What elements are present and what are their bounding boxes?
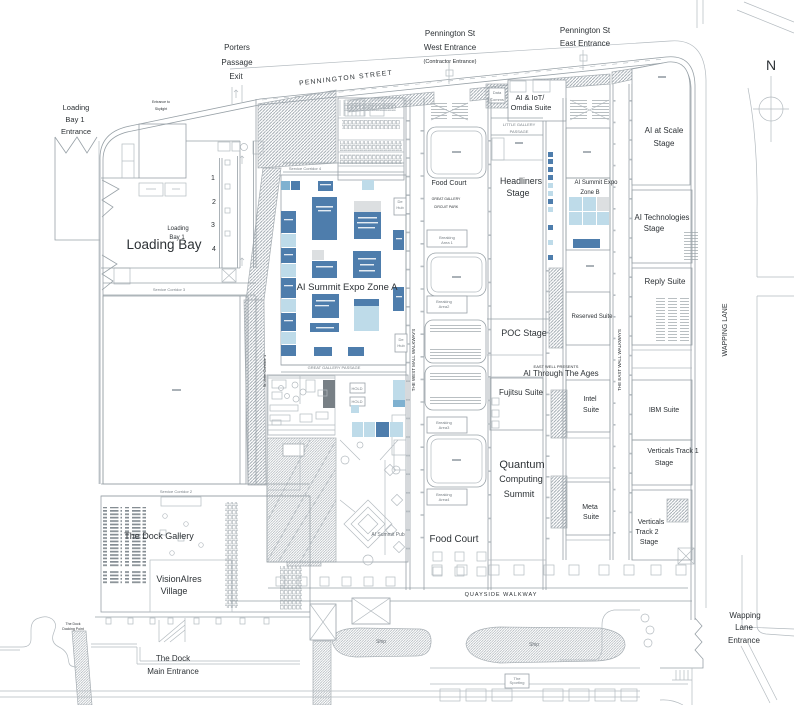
svg-text:Verticals Track 1: Verticals Track 1: [647, 448, 698, 455]
svg-text:The Dock Gallery: The Dock Gallery: [124, 531, 194, 541]
svg-text:Stage: Stage: [654, 139, 675, 148]
svg-text:Hub: Hub: [396, 205, 404, 210]
svg-text:AI Summit Expo: AI Summit Expo: [574, 180, 618, 186]
svg-text:Ship: Ship: [376, 639, 386, 645]
svg-text:The Dock: The Dock: [156, 654, 191, 663]
svg-text:Wapping: Wapping: [729, 611, 760, 620]
svg-text:Entrance: Entrance: [728, 636, 761, 645]
svg-text:Service Corridor 2: Service Corridor 2: [160, 489, 193, 494]
svg-text:Main Entrance: Main Entrance: [147, 667, 199, 676]
svg-text:Entrance: Entrance: [61, 127, 91, 136]
svg-text:Data: Data: [493, 90, 502, 95]
svg-text:Sporting: Sporting: [510, 680, 525, 685]
svg-text:Area3: Area3: [439, 425, 450, 430]
svg-text:THE EAST WALL WALKWAYS: THE EAST WALL WALKWAYS: [617, 329, 622, 391]
svg-text:Loading Bay: Loading Bay: [126, 237, 201, 252]
svg-text:AI Through The Ages: AI Through The Ages: [523, 369, 598, 378]
svg-text:Reply Suite: Reply Suite: [645, 277, 686, 286]
svg-text:VisionAIres: VisionAIres: [156, 574, 202, 584]
svg-text:Stage: Stage: [640, 539, 658, 546]
svg-text:Pennington St: Pennington St: [560, 26, 611, 35]
svg-text:Docking Point: Docking Point: [62, 627, 84, 631]
svg-text:AI Technologies: AI Technologies: [635, 213, 690, 222]
svg-text:West Entrance: West Entrance: [424, 43, 477, 52]
svg-text:Service Corridor 3: Service Corridor 3: [153, 287, 186, 292]
svg-text:AI Summit Pub: AI Summit Pub: [371, 532, 405, 538]
svg-text:LITTLE GALLERY: LITTLE GALLERY: [503, 122, 536, 127]
svg-text:QUAYSIDE WALKWAY: QUAYSIDE WALKWAY: [465, 592, 538, 598]
svg-text:2: 2: [212, 199, 216, 206]
svg-text:Zone B: Zone B: [580, 190, 599, 196]
svg-text:HOLD: HOLD: [351, 399, 362, 404]
svg-text:Meta: Meta: [582, 504, 598, 511]
svg-text:Headliners: Headliners: [500, 176, 543, 186]
svg-text:The Dock: The Dock: [66, 622, 81, 626]
svg-text:Ship: Ship: [529, 642, 539, 648]
svg-text:Suite: Suite: [583, 514, 599, 521]
svg-text:Porters: Porters: [224, 43, 250, 52]
svg-text:Omdia Suite: Omdia Suite: [511, 103, 552, 112]
svg-text:St John Corridor 1: St John Corridor 1: [262, 354, 267, 387]
svg-text:CIRCUIT PARK: CIRCUIT PARK: [434, 205, 459, 209]
svg-text:Hub: Hub: [397, 343, 405, 348]
svg-text:(Contractor Entrance): (Contractor Entrance): [424, 59, 477, 65]
svg-text:Bay 1: Bay 1: [169, 235, 185, 241]
svg-text:Village: Village: [161, 586, 188, 596]
svg-text:PASSAGE: PASSAGE: [510, 129, 529, 134]
svg-text:Area4: Area4: [439, 497, 450, 502]
svg-text:Intel: Intel: [583, 396, 597, 403]
svg-text:Stage: Stage: [644, 224, 664, 233]
svg-text:Area 1: Area 1: [441, 240, 454, 245]
svg-text:AI at Scale: AI at Scale: [645, 126, 684, 135]
svg-text:Lane: Lane: [735, 623, 753, 632]
svg-text:De: De: [398, 337, 404, 342]
svg-text:Skylight: Skylight: [155, 107, 167, 111]
svg-text:Pennington St: Pennington St: [425, 29, 476, 38]
svg-text:Verticals: Verticals: [638, 519, 665, 526]
svg-text:Comms: Comms: [490, 97, 504, 102]
svg-text:Summit: Summit: [504, 489, 535, 499]
svg-text:Exit: Exit: [229, 72, 243, 81]
svg-text:Suite: Suite: [583, 407, 599, 414]
svg-text:Stage: Stage: [507, 188, 530, 198]
svg-text:POC Stage: POC Stage: [501, 328, 547, 338]
svg-text:Area2: Area2: [439, 304, 450, 309]
svg-text:Bay 1: Bay 1: [65, 115, 84, 124]
svg-text:THE WEST MALL WALKWAYS: THE WEST MALL WALKWAYS: [411, 329, 416, 392]
svg-text:Passage: Passage: [221, 58, 253, 67]
svg-text:1: 1: [211, 175, 215, 182]
svg-text:Food Court: Food Court: [431, 180, 466, 187]
svg-text:Food Court: Food Court: [429, 534, 478, 545]
svg-text:Loading: Loading: [167, 226, 188, 232]
svg-text:Reserved Suite: Reserved Suite: [571, 314, 613, 320]
svg-text:IBM Suite: IBM Suite: [649, 407, 679, 414]
svg-text:Loading: Loading: [63, 103, 90, 112]
svg-text:N: N: [766, 57, 776, 73]
svg-text:Stage: Stage: [655, 460, 673, 467]
svg-text:HOLD: HOLD: [351, 386, 362, 391]
svg-text:Entrance to: Entrance to: [152, 100, 170, 104]
svg-text:East Entrance: East Entrance: [560, 39, 611, 48]
svg-text:Quantum: Quantum: [499, 459, 544, 471]
svg-text:Fujitsu Suite: Fujitsu Suite: [499, 388, 544, 397]
svg-text:De: De: [397, 199, 403, 204]
svg-text:WAPPING LANE: WAPPING LANE: [722, 303, 729, 356]
svg-text:Service Corridor 4: Service Corridor 4: [289, 166, 322, 171]
svg-text:Computing: Computing: [499, 474, 543, 484]
svg-text:3: 3: [211, 222, 215, 229]
svg-text:GREAT GALLERY PASSAGE: GREAT GALLERY PASSAGE: [308, 365, 361, 370]
svg-text:AI Summit Expo Zone A: AI Summit Expo Zone A: [297, 282, 399, 293]
svg-text:AI & IoT/: AI & IoT/: [516, 93, 546, 102]
svg-text:GREAT GALLERY: GREAT GALLERY: [432, 197, 461, 201]
svg-text:4: 4: [212, 246, 216, 253]
svg-text:Track 2: Track 2: [635, 529, 658, 536]
